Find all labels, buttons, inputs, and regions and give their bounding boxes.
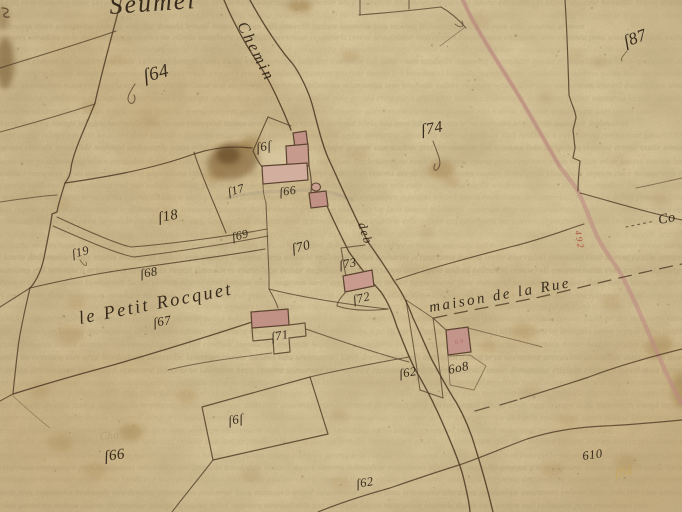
svg-text:ſ62: ſ62 — [355, 474, 375, 491]
svg-text:Co: Co — [657, 210, 677, 228]
svg-text:ſ67: ſ67 — [152, 312, 172, 330]
svg-text:ſ71: ſ71 — [270, 327, 290, 344]
svg-text:610: 610 — [581, 446, 603, 463]
svg-text:6.9: 6.9 — [454, 339, 464, 346]
svg-text:ſ62: ſ62 — [398, 364, 418, 381]
svg-text:ſ84: ſ84 — [614, 463, 634, 480]
svg-text:ſ73: ſ73 — [338, 255, 358, 272]
svg-text:ſ66: ſ66 — [103, 446, 126, 465]
svg-text:Cha: Cha — [99, 429, 120, 443]
svg-text:ſ66: ſ66 — [278, 183, 297, 199]
